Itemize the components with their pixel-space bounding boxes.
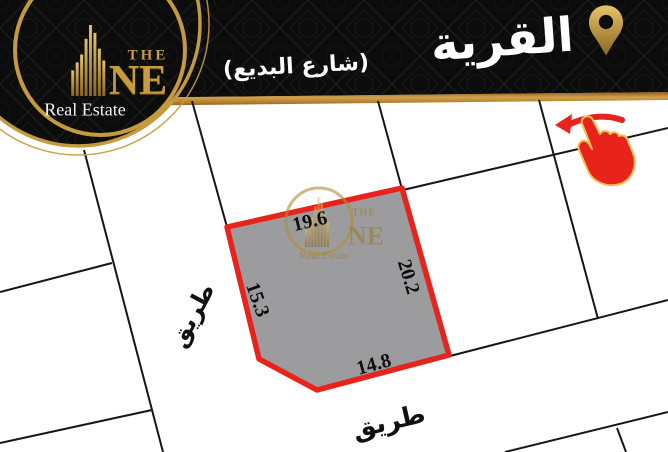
- watermark-word-ne: NE: [348, 224, 384, 247]
- location-title: القرية: [429, 12, 575, 69]
- pointing-hand: [578, 116, 634, 185]
- swipe-left-hand-icon: [552, 105, 644, 197]
- parcel-boundary-line: [617, 428, 626, 452]
- parcel-boundary-line: [192, 101, 227, 227]
- brand-tagline: Real Estate: [44, 100, 125, 121]
- watermark-word-the: THE: [352, 208, 376, 219]
- pin-body: [589, 5, 623, 55]
- parcel-boundary-line: [84, 150, 163, 452]
- brand-badge: [0, 0, 209, 155]
- parcel-boundary-line: [0, 410, 152, 443]
- parcel-boundary-line: [378, 101, 402, 189]
- brand-word-ne: NE: [109, 63, 167, 101]
- location-pin-icon: [588, 4, 624, 58]
- parcel-boundary-line: [0, 263, 112, 292]
- parcel-boundary-line: [505, 412, 668, 452]
- watermark-tagline: Real Estate: [299, 250, 349, 262]
- plot-map-flyer[interactable]: القرية (شارع البديع) THE NE Real Estate …: [0, 0, 668, 452]
- swipe-arrow-head: [555, 114, 572, 134]
- pin-hole: [599, 15, 613, 29]
- parcel-boundary-line: [450, 300, 668, 356]
